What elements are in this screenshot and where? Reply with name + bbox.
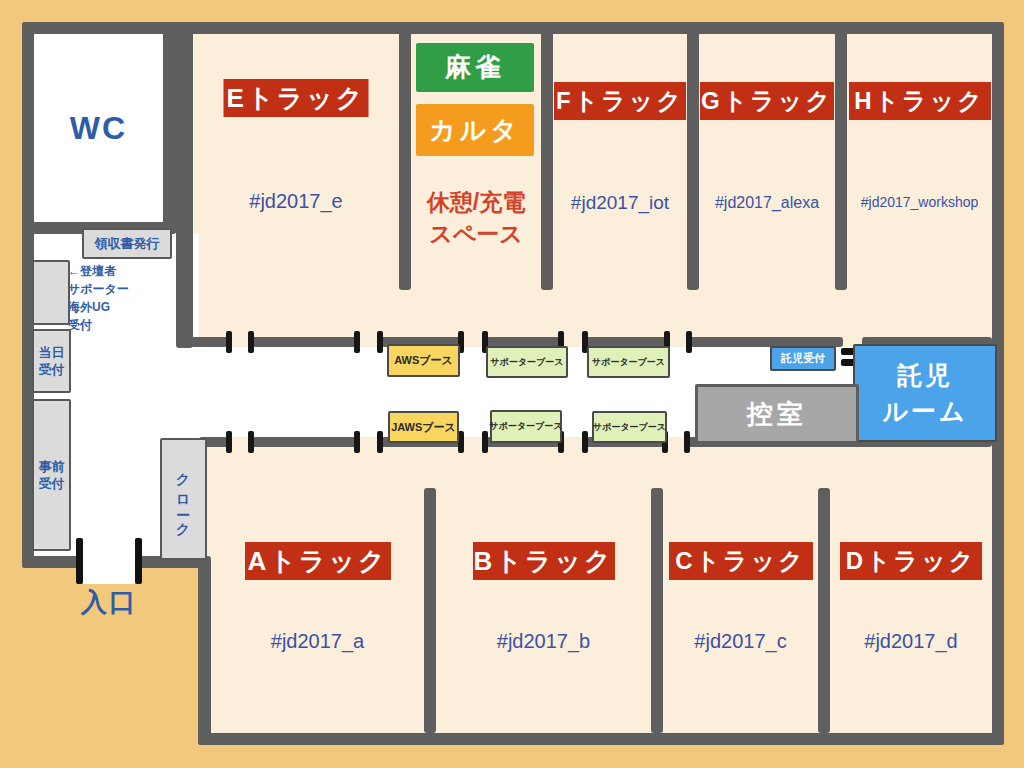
wc-room: WC	[34, 34, 163, 222]
room-d-track: Dトラック #jd2017_d	[830, 447, 992, 733]
supporter-booth-label: サポーターブース	[489, 420, 562, 433]
wall-segment	[180, 337, 228, 347]
advance-reception-label: 事前 受付	[39, 458, 65, 492]
childcare-room-label: 託児 ルーム	[882, 357, 967, 429]
wall-segment	[163, 22, 176, 234]
wall-segment	[651, 488, 663, 733]
wall-segment	[687, 30, 699, 290]
entrance-opening	[83, 540, 135, 584]
wall-segment	[176, 22, 193, 348]
karuta-area: カルタ	[416, 104, 534, 156]
supporter-booth-top-2: サポーターブース	[587, 346, 670, 378]
supporter-booth-label: サポーターブース	[592, 356, 665, 369]
wall-segment	[252, 437, 357, 447]
greenroom-label: 控室	[747, 397, 807, 432]
wc-label: WC	[70, 110, 127, 147]
childcare-reception-label: 託児受付	[781, 351, 825, 366]
track-c-hashtag: #jd2017_c	[663, 630, 818, 653]
track-h-label: Hトラック	[849, 82, 991, 120]
jaws-booth-label: JAWSブース	[391, 420, 456, 435]
speaker-reception-desk	[32, 260, 70, 325]
same-day-reception-label: 当日 受付	[39, 344, 65, 378]
cloakroom-label: クローク	[175, 463, 193, 535]
venue-floor-map: WC 入口 領収書発行 ←登壇者 サポーター 海外UG 受付 当日 受付 事前 …	[0, 0, 1024, 768]
karuta-label: カルタ	[429, 113, 521, 148]
supporter-booth-top-1: サポーターブース	[486, 346, 568, 378]
rest-charge-space-label: 休憩/充電 スペース	[411, 186, 541, 250]
entrance-right-jamb	[135, 538, 142, 584]
advance-reception-desk: 事前 受付	[32, 399, 71, 551]
track-h-hashtag: #jd2017_workshop	[847, 194, 992, 210]
wall-segment	[835, 30, 847, 290]
room-f-track: Fトラック #jd2017_iot	[553, 34, 687, 337]
track-d-label: Dトラック	[840, 542, 982, 580]
greenroom: 控室	[695, 384, 859, 444]
supporter-booth-label: サポーターブース	[490, 356, 563, 369]
lounge-area: 麻雀 カルタ 休憩/充電 スペース	[411, 34, 541, 337]
wall-segment	[198, 556, 211, 745]
childcare-room: 託児 ルーム	[853, 344, 997, 442]
track-e-hashtag: #jd2017_e	[193, 190, 399, 213]
room-a-track: Aトラック #jd2017_a	[211, 447, 424, 733]
entrance-left-jamb	[76, 538, 83, 584]
jaws-booth: JAWSブース	[388, 411, 459, 443]
speaker-reception-note: ←登壇者 サポーター 海外UG 受付	[68, 262, 168, 334]
wall-segment	[818, 488, 830, 733]
supporter-booth-label: サポーターブース	[593, 421, 666, 434]
track-e-label: Eトラック	[224, 79, 369, 117]
track-b-hashtag: #jd2017_b	[436, 630, 651, 653]
wall-segment	[22, 556, 80, 568]
same-day-reception-desk: 当日 受付	[32, 329, 71, 393]
aws-booth-label: AWSブース	[394, 353, 453, 368]
track-d-hashtag: #jd2017_d	[830, 630, 992, 653]
room-b-track: Bトラック #jd2017_b	[436, 447, 651, 733]
supporter-booth-bottom-1: サポーターブース	[490, 410, 562, 443]
track-g-label: Gトラック	[700, 82, 834, 120]
wall-segment	[198, 733, 1004, 745]
wall-segment	[252, 337, 357, 347]
room-h-track: Hトラック #jd2017_workshop	[847, 34, 992, 337]
track-b-label: Bトラック	[473, 542, 615, 580]
room-g-track: Gトラック #jd2017_alexa	[699, 34, 835, 337]
mahjong-label: 麻雀	[445, 50, 505, 85]
entrance-label: 入口	[75, 585, 143, 620]
room-e-track: Eトラック #jd2017_e	[193, 34, 399, 337]
aws-booth: AWSブース	[387, 344, 460, 377]
track-f-label: Fトラック	[554, 82, 686, 120]
supporter-booth-bottom-2: サポーターブース	[592, 411, 667, 443]
wall-segment	[541, 30, 553, 290]
wall-segment	[424, 488, 436, 733]
cloakroom: クローク	[160, 438, 207, 560]
mahjong-area: 麻雀	[416, 43, 534, 92]
track-c-label: Cトラック	[669, 542, 813, 580]
wall-segment	[399, 30, 411, 290]
receipt-desk-label: 領収書発行	[95, 235, 160, 253]
track-f-hashtag: #jd2017_iot	[553, 192, 687, 214]
room-c-track: Cトラック #jd2017_c	[663, 447, 818, 733]
childcare-reception: 託児受付	[770, 346, 836, 371]
track-a-label: Aトラック	[245, 542, 391, 580]
receipt-desk: 領収書発行	[82, 228, 172, 259]
track-a-hashtag: #jd2017_a	[211, 630, 424, 653]
track-g-hashtag: #jd2017_alexa	[699, 194, 835, 212]
